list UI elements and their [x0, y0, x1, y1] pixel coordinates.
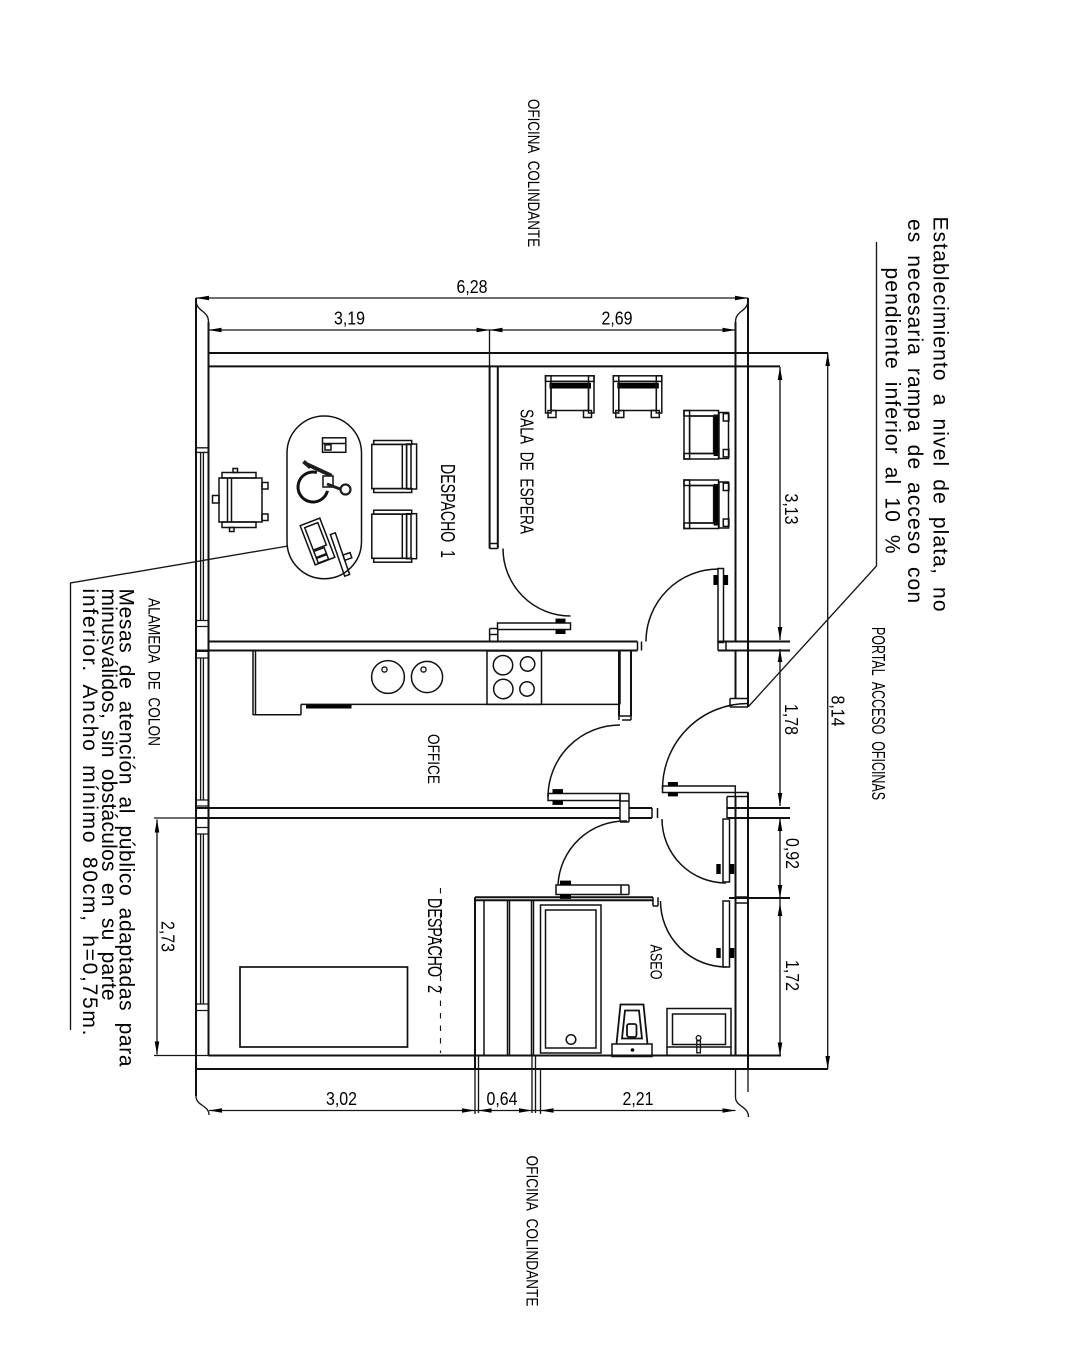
svg-text:OFICINA COLINDANTE: OFICINA COLINDANTE [524, 99, 543, 247]
svg-text:Establecimiento a nivel de pla: Establecimiento a nivel de plata, no [928, 217, 951, 612]
svg-text:1,72: 1,72 [782, 960, 803, 991]
svg-text:8,14: 8,14 [828, 696, 849, 727]
svg-text:ALAMEDA DE COLON: ALAMEDA DE COLON [145, 598, 164, 746]
svg-text:es necesaria rampa de acceso c: es necesaria rampa de acceso con [903, 219, 926, 603]
svg-text:3,02: 3,02 [326, 1088, 357, 1109]
svg-text:1,78: 1,78 [781, 704, 802, 735]
svg-text:OFFICE: OFFICE [424, 734, 443, 784]
svg-text:0,64: 0,64 [487, 1088, 518, 1109]
svg-text:2,69: 2,69 [602, 308, 633, 329]
svg-text:pendiente inferior al 10 %: pendiente inferior al 10 % [881, 268, 904, 554]
svg-text:0,92: 0,92 [782, 838, 803, 869]
svg-text:OFICINA COLINDANTE: OFICINA COLINDANTE [523, 1156, 542, 1307]
svg-text:6,28: 6,28 [457, 276, 488, 297]
svg-text:PORTAL ACCESO OFICINAS: PORTAL ACCESO OFICINAS [868, 627, 888, 800]
svg-text:3,19: 3,19 [334, 308, 365, 329]
svg-text:ASEO: ASEO [647, 945, 666, 980]
svg-text:DESPACHO 1: DESPACHO 1 [436, 464, 458, 558]
svg-text:inferior. Ancho mínimo 80cm, h: inferior. Ancho mínimo 80cm, h=0,75m. [78, 589, 101, 1036]
svg-text:DESPACHO 2: DESPACHO 2 [423, 898, 445, 993]
svg-text:SALA DE ESPERA: SALA DE ESPERA [517, 409, 538, 534]
svg-text:2,73: 2,73 [158, 921, 179, 952]
svg-text:2,21: 2,21 [623, 1088, 654, 1109]
svg-text:3,13: 3,13 [781, 494, 802, 525]
